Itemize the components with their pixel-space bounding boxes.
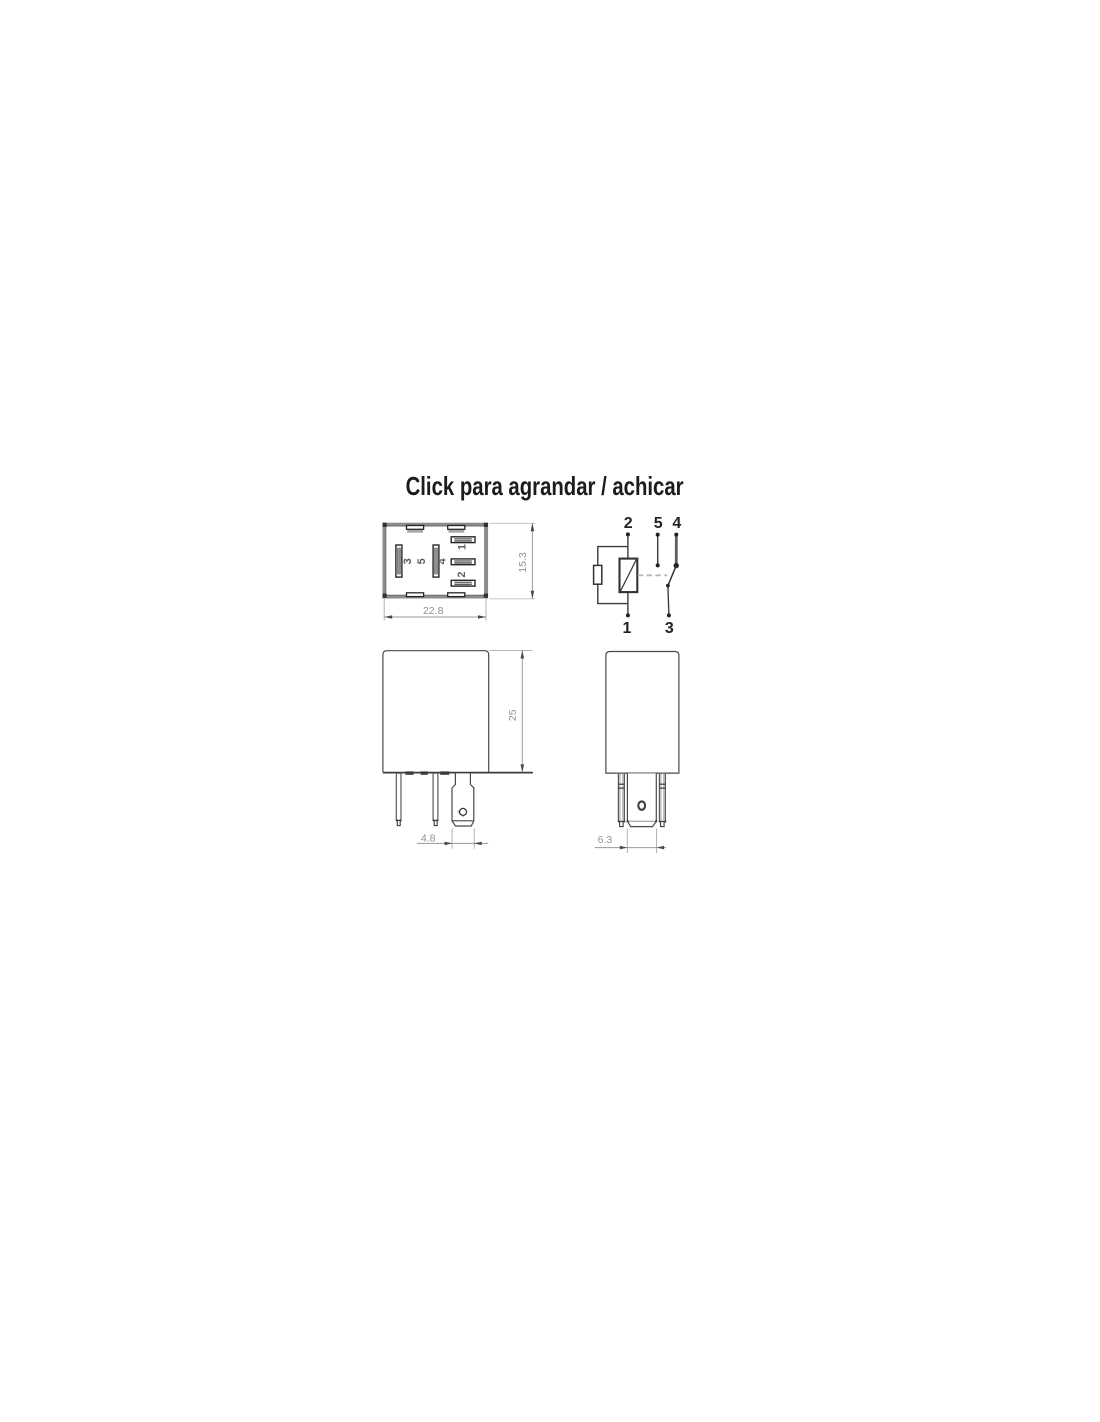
svg-text:4: 4 [437, 557, 449, 564]
svg-text:3: 3 [402, 558, 414, 564]
svg-text:Click para agrandar / achicar: Click para agrandar / achicar [406, 471, 684, 501]
svg-text:22.8: 22.8 [423, 605, 444, 617]
svg-text:5: 5 [654, 515, 663, 532]
svg-text:15.3: 15.3 [517, 552, 529, 573]
svg-text:4: 4 [672, 515, 681, 532]
svg-text:4.8: 4.8 [421, 833, 436, 845]
svg-text:6.3: 6.3 [598, 834, 613, 846]
svg-text:3: 3 [665, 620, 674, 637]
svg-text:2: 2 [624, 515, 633, 532]
svg-text:1: 1 [623, 620, 632, 637]
svg-text:25: 25 [507, 709, 519, 721]
svg-text:5: 5 [416, 558, 428, 564]
svg-text:2: 2 [456, 572, 468, 578]
svg-text:1: 1 [456, 544, 468, 550]
